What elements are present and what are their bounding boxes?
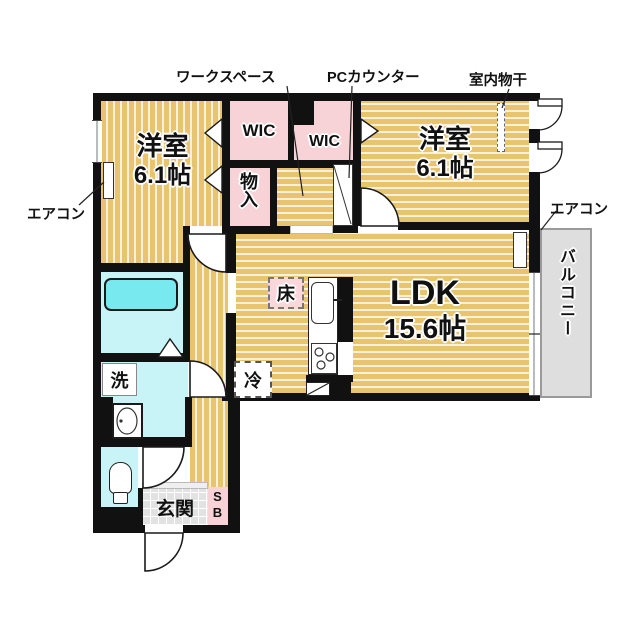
bedroom-right-label: 洋室 6.1帖 (370, 125, 520, 182)
washing-machine-label: 洗 (102, 363, 137, 396)
pc-counter-annotation: PCカウンター (327, 66, 420, 87)
wall-bedroom-right-bottom (398, 222, 540, 230)
aircon-left-annotation: エアコン (27, 203, 85, 224)
casement-arc-1 (538, 106, 562, 130)
wic-right-label: WIC (296, 130, 353, 154)
aircon-unit-right (513, 232, 527, 268)
opening-workspace-ldk (290, 225, 333, 234)
casement-leaf-1 (538, 99, 562, 106)
bedroom-left-size: 6.1帖 (100, 162, 225, 190)
ldk-name: LDK (340, 274, 510, 313)
wall-bathroom-top (93, 263, 190, 272)
kitchen-stove (311, 343, 337, 374)
hallway-floor (190, 234, 228, 487)
refrigerator-label: 冷 (234, 361, 272, 398)
toilet-tank (113, 492, 128, 504)
entrance-step (142, 482, 208, 489)
storage-label: 物入 (239, 172, 257, 208)
ldk-size: 15.6帖 (340, 313, 510, 345)
wall-washroom-jog (93, 397, 113, 447)
kitchen-sink (311, 282, 334, 324)
entrance-label: 玄関 (142, 489, 208, 525)
indoor-drying-annotation: 室内物干 (469, 69, 527, 90)
wall-bedroom-right-left (353, 93, 361, 226)
bedroom-right-size: 6.1帖 (370, 155, 520, 183)
wall-bath-hall-divider (183, 226, 190, 362)
door-arc-entrance (145, 533, 183, 571)
wall-toilet-bottom-mass (93, 507, 143, 533)
bedroom-left-name: 洋室 (100, 132, 225, 162)
shoe-box-label: SB (211, 489, 224, 521)
window-bedroom-right-1 (529, 101, 540, 129)
wall-wic-notch (288, 95, 314, 125)
bedroom-left-floor-lower (101, 226, 183, 263)
kitchen-niche (338, 342, 353, 375)
wall-wing-bottom-right (183, 525, 240, 533)
casement-leaf-2 (538, 142, 562, 149)
wall-wic-divider (288, 125, 294, 168)
bathtub (104, 278, 178, 311)
wic-left-label: WIC (230, 119, 288, 143)
kitchen-bottom-bar (306, 375, 353, 382)
wall-washroom-right-lower (185, 397, 192, 447)
floor-plan: 洋室 6.1帖 洋室 6.1帖 LDK 15.6帖 WIC WIC 物入 床 冷… (0, 0, 640, 640)
kitchen-black-box (330, 382, 351, 395)
balcony-sliding-door (529, 272, 540, 396)
wall-storage-right (270, 160, 277, 234)
wall-hall-ldk-upper (226, 226, 236, 273)
toilet-bowl (109, 462, 132, 494)
wash-basin-box (112, 403, 143, 439)
casement-arc-2 (538, 149, 562, 173)
wall-ldk-top-mid (333, 225, 358, 233)
ldk-label: LDK 15.6帖 (340, 274, 510, 345)
wall-top (95, 93, 540, 101)
floor-storage-label: 床 (268, 277, 304, 309)
workspace-annotation: ワークスペース (176, 66, 275, 87)
wall-bathroom-bottom (95, 353, 190, 362)
bedroom-left-label: 洋室 6.1帖 (100, 132, 225, 189)
bedroom-right-name: 洋室 (370, 125, 520, 155)
wall-wing-right (228, 401, 240, 533)
balcony-label: バルコニー (553, 248, 577, 338)
workspace-floor (277, 168, 333, 226)
aircon-right-annotation: エアコン (550, 198, 608, 219)
kitchen-cabinet (306, 382, 330, 396)
pc-counter-unit (333, 164, 353, 226)
window-bedroom-right-2 (529, 143, 540, 172)
